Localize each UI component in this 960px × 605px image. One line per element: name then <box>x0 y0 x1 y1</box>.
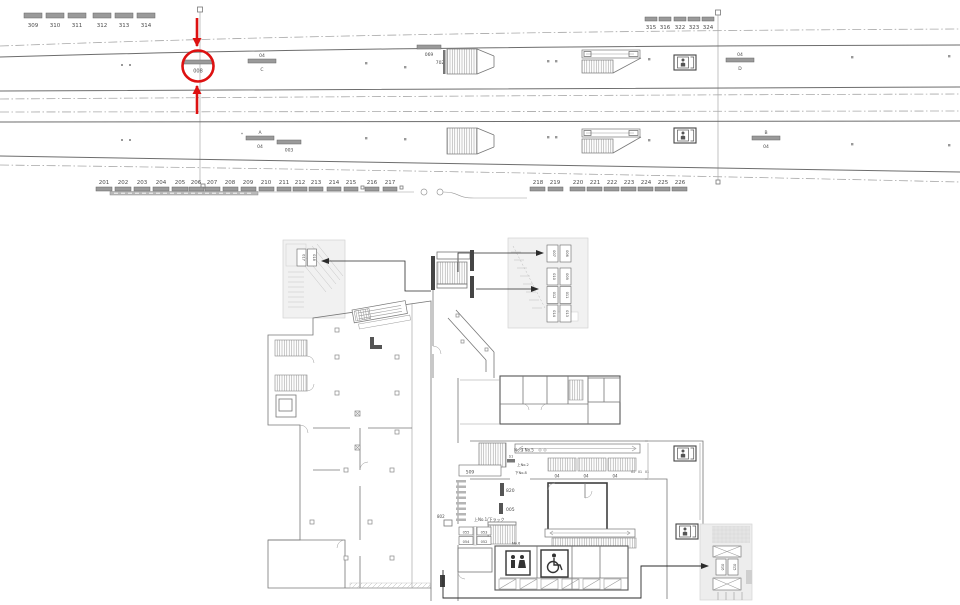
position-id: 215 <box>346 180 357 186</box>
lower-escalator <box>545 529 636 548</box>
sign-a-letter: A <box>258 130 262 136</box>
stairs-icon-p2 <box>447 128 494 154</box>
label-005: 005 <box>506 507 515 513</box>
sign-008-label: 008 <box>193 69 203 75</box>
position-id: 203 <box>137 180 148 186</box>
escalator-corridor: 04 04 04 01 01 01 No.3 No.5 S1 上No.2 下No… <box>459 441 649 479</box>
escalator-icon-p1 <box>582 50 641 73</box>
sign-069-label: 069 <box>425 52 434 58</box>
station-plan-svg: 309 310 311 312 313 314 315 316 322 323 … <box>0 0 960 605</box>
position-id: 224 <box>641 180 652 186</box>
sign-id-007: 007 <box>552 250 556 257</box>
position-id: 214 <box>329 180 340 186</box>
sign-id-014: 014 <box>552 310 556 318</box>
position-id: 211 <box>279 180 290 186</box>
track-diagram: 309 310 311 312 313 314 315 316 322 323 … <box>0 7 960 198</box>
sign-a: * A 04 <box>241 130 274 150</box>
position-id: 314 <box>141 23 152 29</box>
label-052: 052 <box>481 540 488 544</box>
sign-069: 069 702 <box>417 45 444 66</box>
elevator-icon-p1 <box>674 55 696 70</box>
position-id: 226 <box>675 180 686 186</box>
track-centerline-3 <box>0 111 960 112</box>
position-id: 219 <box>550 180 561 186</box>
sign-c-letter: C <box>260 67 263 73</box>
label-s1: S1 <box>509 455 514 459</box>
platform1-markers <box>121 55 950 68</box>
position-id: 309 <box>28 23 39 29</box>
sign-a-number: 04 <box>257 144 263 150</box>
label-054: 054 <box>463 540 471 544</box>
right-corridor <box>645 441 703 599</box>
platform1: 008 04 C 069 702 <box>121 18 950 114</box>
position-id: 208 <box>225 180 236 186</box>
sign-a-mark: * <box>241 132 243 137</box>
escalator-icon-p2 <box>582 129 641 153</box>
elevator-icon-corridor-top <box>674 446 696 461</box>
platform2: * A 04 003 B <box>121 128 950 154</box>
concourse-escalator-core <box>431 250 474 298</box>
position-id: 225 <box>658 180 669 186</box>
label-820: 820 <box>506 488 515 494</box>
concourse-floor-plan: 017 018 007 006 010 009 012 011 014 013 <box>268 238 752 601</box>
position-id: 221 <box>590 180 601 186</box>
position-id-group-left: 309 310 311 312 313 314 <box>24 13 155 29</box>
platform2-bottom-edge <box>0 156 960 172</box>
position-id-row-bottom: 201 202 203 204 205 206 207 208 209 210 … <box>96 180 687 198</box>
position-id: 315 <box>646 25 657 31</box>
position-id: 206 <box>191 180 202 186</box>
position-id: 207 <box>207 180 218 186</box>
elevator-icon-corridor-bottom <box>676 524 698 539</box>
platform2-top-edge <box>0 121 960 122</box>
hall-escalator-icon <box>352 300 411 329</box>
label-04-b: 04 <box>583 474 589 479</box>
sign-id-018: 018 <box>312 254 316 262</box>
sign-id-009: 009 <box>565 273 569 281</box>
platform1-top-edge <box>0 45 960 57</box>
label-04-a: 04 <box>554 474 560 479</box>
sign-id-013: 013 <box>565 310 569 317</box>
position-id: 323 <box>689 25 700 31</box>
position-id: 201 <box>99 180 110 186</box>
position-id: 213 <box>311 180 322 186</box>
position-id: 202 <box>118 180 129 186</box>
track-centerline-2 <box>0 94 960 99</box>
position-id: 312 <box>97 23 108 29</box>
highlight-annotation <box>183 18 214 114</box>
highlight-circle <box>183 51 214 82</box>
sign-id-015: 015 <box>733 564 737 571</box>
elevator-icon-p2 <box>674 128 696 143</box>
sign-008: 008 <box>184 60 212 75</box>
track-centerline-1 <box>0 29 960 46</box>
inset-detail-right: 007 006 010 009 012 011 014 013 <box>458 238 588 328</box>
sign-id-017: 017 <box>302 254 306 261</box>
label-01-a: 01 <box>631 470 635 474</box>
label-down-no8: 下No.8 <box>515 471 528 475</box>
position-id: 216 <box>367 180 378 186</box>
label-01-b: 01 <box>638 470 642 474</box>
position-id: 212 <box>295 180 306 186</box>
label-no6: No.6 <box>512 542 521 546</box>
sign-003: 003 <box>277 140 301 154</box>
restroom-block <box>495 546 628 590</box>
sign-id-011: 011 <box>565 292 569 299</box>
position-id: 322 <box>675 25 686 31</box>
label-04-c: 04 <box>612 474 618 479</box>
sign-c: 04 C <box>248 53 276 73</box>
column-x-markers <box>355 411 360 450</box>
inset-detail-left: 017 018 <box>283 240 431 318</box>
label-802: 802 <box>437 514 445 519</box>
position-id: 316 <box>660 25 671 31</box>
position-id: 217 <box>385 180 396 186</box>
label-509: 509 <box>466 470 475 476</box>
grid-line-right <box>716 10 721 184</box>
sign-005: 005 <box>499 503 515 514</box>
position-id: 209 <box>243 180 254 186</box>
position-id: 222 <box>607 180 618 186</box>
central-corridor <box>431 378 458 601</box>
position-id-group-right: 315 316 322 323 324 <box>645 17 714 31</box>
position-id: 205 <box>175 180 186 186</box>
sign-820: 820 <box>500 483 515 496</box>
position-id: 311 <box>72 23 83 29</box>
stairs-icon-p1 <box>443 49 494 74</box>
label-01-c: 01 <box>645 470 649 474</box>
dashed-escalator <box>456 480 466 521</box>
sign-id-016: 016 <box>721 564 725 572</box>
position-id: 313 <box>119 23 130 29</box>
sign-id-006: 006 <box>565 250 569 258</box>
position-id: 223 <box>624 180 635 186</box>
wheelchair-icon <box>541 550 568 577</box>
position-id: 324 <box>703 25 714 31</box>
sign-b-letter: B <box>764 130 767 136</box>
sign-id-012: 012 <box>552 292 556 299</box>
sign-d: 04 D <box>726 52 754 72</box>
station-drawing-page: 309 310 311 312 313 314 315 316 322 323 … <box>0 0 960 605</box>
sign-d-number: 04 <box>737 52 743 58</box>
platform2-markers <box>121 136 950 146</box>
left-hall <box>268 300 431 588</box>
label-rack: 上No.1/下ラック <box>474 516 505 522</box>
position-id: 218 <box>533 180 544 186</box>
platform1-bottom-edge <box>0 87 960 91</box>
upper-corridor <box>433 290 494 378</box>
sign-c-number: 04 <box>259 53 265 59</box>
label-up-no2: 上No.2 <box>517 462 529 467</box>
position-id: 210 <box>261 180 272 186</box>
center-room <box>548 483 607 531</box>
sign-d-letter: D <box>738 66 742 72</box>
sign-003-label: 003 <box>285 148 294 154</box>
sign-b: B 04 <box>752 130 780 150</box>
position-id: 204 <box>156 180 167 186</box>
position-id: 220 <box>573 180 584 186</box>
position-id: 310 <box>50 23 61 29</box>
label-053: 053 <box>481 531 488 535</box>
label-no3-no5: No.3 No.5 <box>514 448 534 453</box>
sign-id-010: 010 <box>552 273 556 281</box>
office-room-block <box>460 376 620 424</box>
restroom-icon <box>506 551 530 575</box>
label-055: 055 <box>463 531 470 535</box>
sign-b-number: 04 <box>763 144 769 150</box>
